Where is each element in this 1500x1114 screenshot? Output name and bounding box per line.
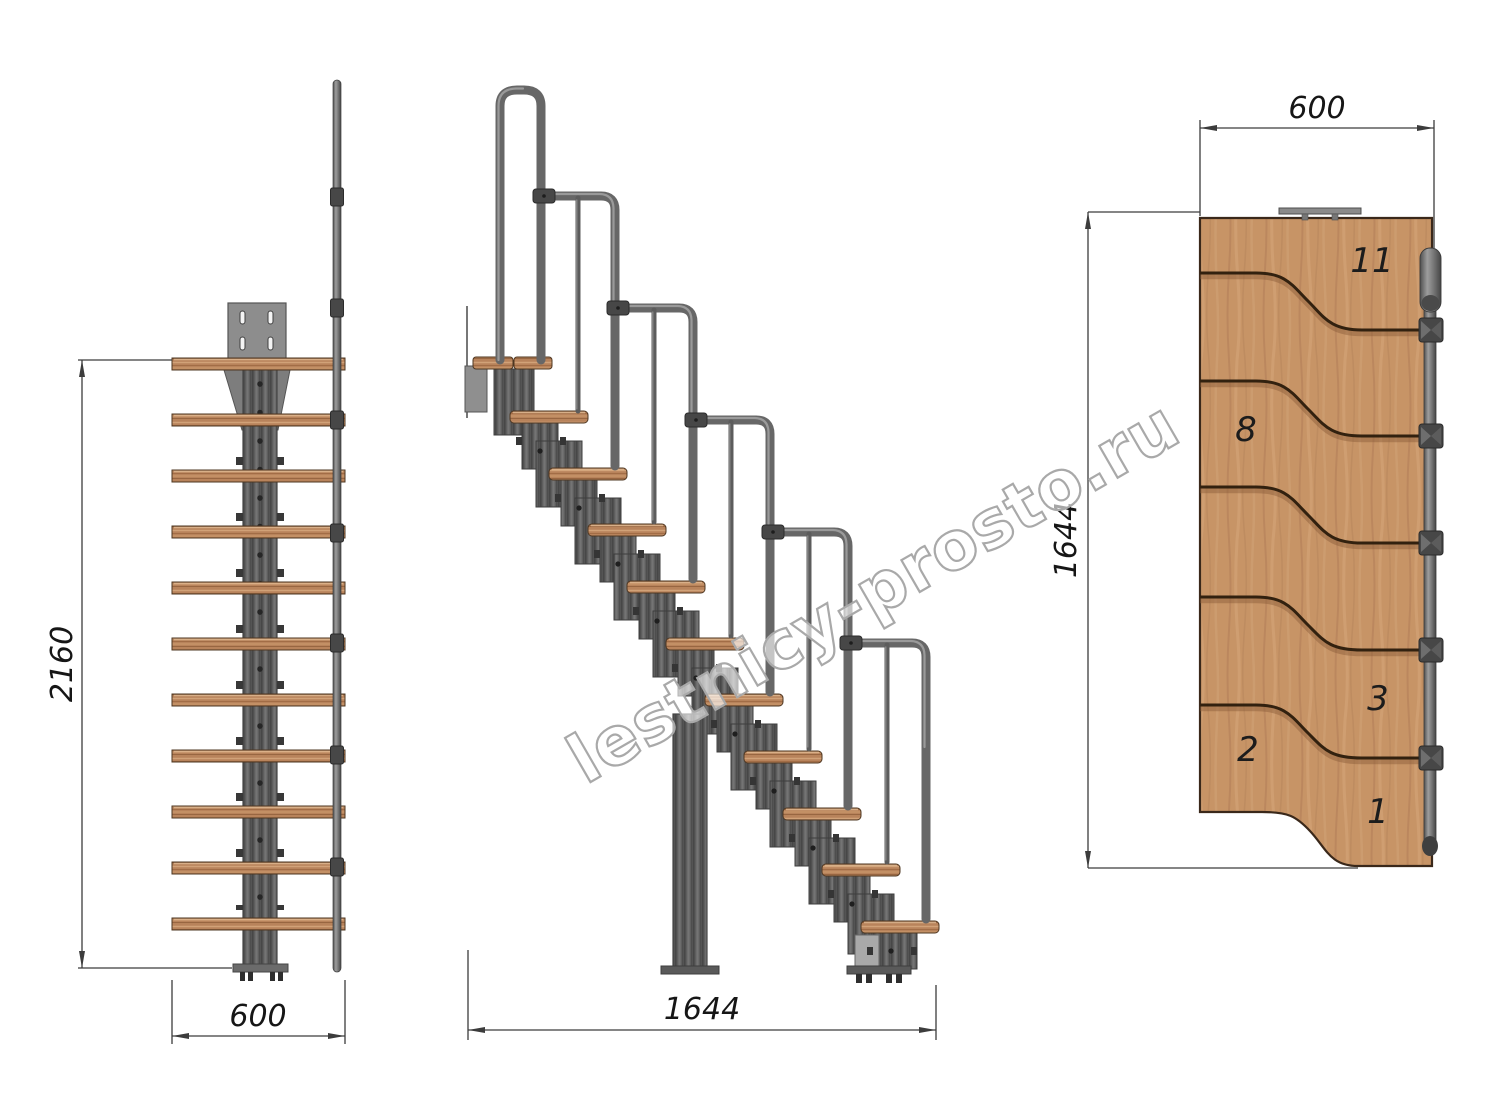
side-length-label: 1644 <box>664 992 740 1027</box>
front-column <box>224 360 290 970</box>
step-number-1: 1 <box>1367 792 1389 832</box>
front-width-dimension: 600 <box>172 980 345 1044</box>
front-height-label: 2160 <box>45 626 80 702</box>
step-number-8: 8 <box>1235 410 1257 450</box>
plan-handrail <box>1419 248 1443 856</box>
step-number-11: 11 <box>1350 241 1393 281</box>
step-number-2: 2 <box>1237 730 1259 770</box>
front-height-dimension: 2160 <box>45 360 232 968</box>
step-number-3: 3 <box>1367 679 1389 719</box>
plan-width-label: 600 <box>1288 91 1345 126</box>
front-view: 2160 600 <box>45 80 345 1044</box>
front-handrail-post <box>331 80 344 972</box>
front-width-label: 600 <box>229 999 286 1034</box>
side-base-plate <box>847 966 911 983</box>
drawing-canvas: 2160 600 <box>0 0 1500 1114</box>
front-base-plate <box>233 964 288 981</box>
wall-bracket <box>228 303 286 360</box>
side-wall-plate <box>465 366 487 412</box>
